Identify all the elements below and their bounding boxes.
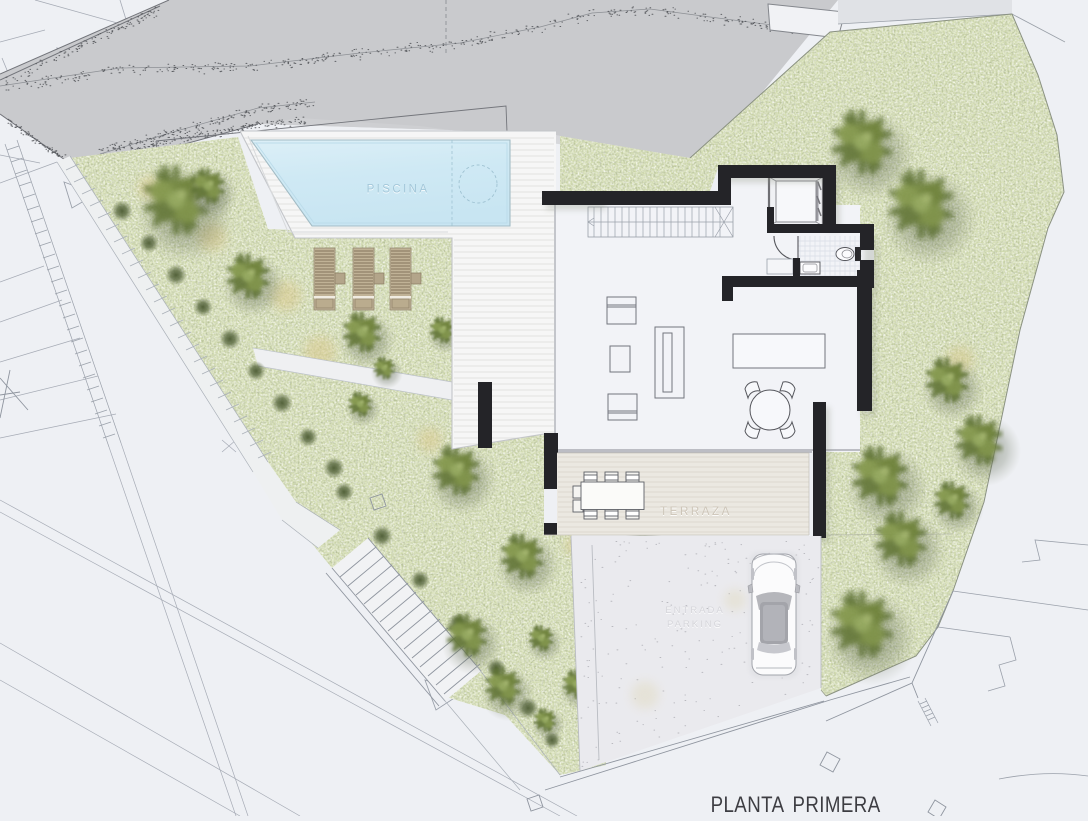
svg-text:PARKING: PARKING xyxy=(667,619,723,630)
svg-text:PLANTA PRIMERA: PLANTA PRIMERA xyxy=(711,794,881,816)
svg-text:ENTRADA: ENTRADA xyxy=(665,605,724,616)
svg-text:TERRAZA: TERRAZA xyxy=(660,506,732,518)
svg-text:PISCINA: PISCINA xyxy=(367,184,430,196)
